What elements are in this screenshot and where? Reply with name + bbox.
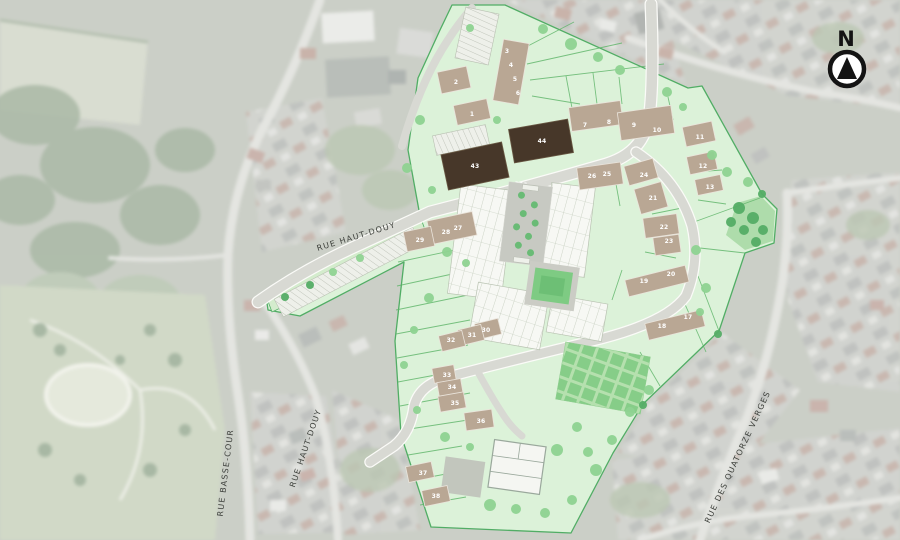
- lot-label-22: 22: [660, 224, 669, 231]
- lot-label-33: 33: [443, 372, 452, 379]
- lot-label-28: 28: [442, 229, 451, 236]
- communal-building: [488, 440, 546, 495]
- lot-label-37: 37: [419, 470, 428, 477]
- lot-label-10: 10: [653, 127, 662, 134]
- lot-label-8: 8: [607, 119, 611, 126]
- lot-label-32: 32: [447, 337, 456, 344]
- lot-label-27: 27: [454, 225, 463, 232]
- lot-label-13: 13: [706, 184, 715, 191]
- lot-label-44: 44: [538, 138, 547, 145]
- lot-label-5: 5: [513, 76, 517, 83]
- lot-label-21: 21: [649, 195, 658, 202]
- lot-label-1: 1: [470, 111, 474, 118]
- lot-label-30: 30: [482, 327, 491, 334]
- compass-n-label: N: [837, 27, 855, 51]
- lot-label-18: 18: [658, 323, 667, 330]
- lot-label-24: 24: [640, 172, 649, 179]
- lot-label-31: 31: [468, 332, 477, 339]
- lot-label-11: 11: [696, 134, 705, 141]
- lot-label-35: 35: [451, 400, 460, 407]
- lot-label-4: 4: [509, 62, 513, 69]
- lot-label-3: 3: [505, 48, 509, 55]
- lot-label-36: 36: [477, 418, 486, 425]
- lot-label-23: 23: [665, 238, 674, 245]
- lot-label-26: 26: [588, 173, 597, 180]
- lot-label-6: 6: [516, 90, 520, 97]
- lot-label-34: 34: [448, 384, 457, 391]
- central-plaza: [499, 182, 552, 267]
- lot-label-20: 20: [667, 271, 676, 278]
- lot-label-12: 12: [699, 163, 708, 170]
- lot-label-7: 7: [583, 122, 587, 129]
- lot-label-19: 19: [640, 278, 649, 285]
- lot-label-2: 2: [454, 79, 458, 86]
- park-square: [524, 261, 580, 312]
- lot-label-9: 9: [632, 122, 636, 129]
- lot-label-38: 38: [432, 493, 441, 500]
- lot-label-17: 17: [684, 314, 693, 321]
- lot-label-43: 43: [471, 163, 480, 170]
- lot-label-29: 29: [416, 237, 425, 244]
- lot-label-25: 25: [603, 171, 612, 178]
- site-plan-map: 1234567891011121317181920212223242526272…: [0, 0, 900, 540]
- masterplan-aerial-screenshot: 1234567891011121317181920212223242526272…: [0, 0, 900, 540]
